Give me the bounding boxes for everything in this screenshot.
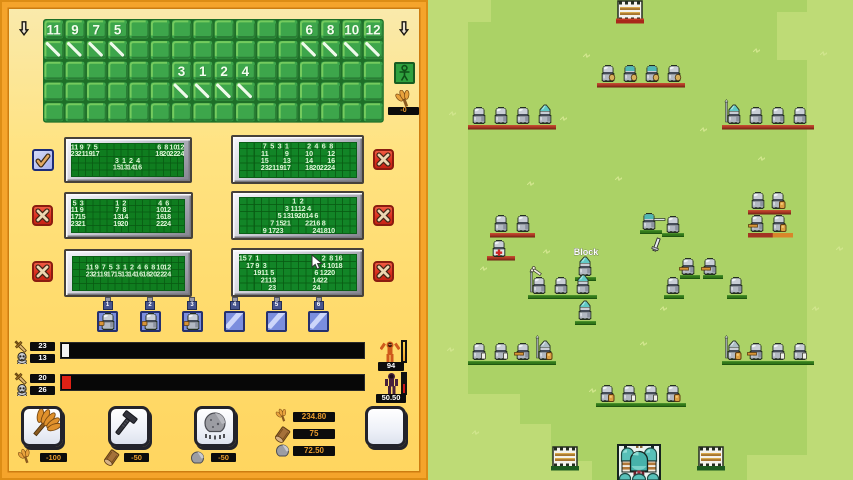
svg-text:8: 8 [327, 23, 335, 38]
svg-text:7: 7 [93, 23, 101, 38]
svg-text:24: 24 [177, 149, 185, 158]
svg-text:5: 5 [114, 23, 122, 38]
svg-text:24: 24 [163, 218, 171, 227]
svg-text:20: 20 [120, 218, 128, 227]
svg-text:4: 4 [242, 64, 250, 79]
svg-text:24: 24 [312, 283, 320, 290]
svg-text:10: 10 [327, 226, 335, 233]
svg-text:23: 23 [268, 283, 276, 290]
svg-text:3: 3 [178, 64, 186, 79]
svg-text:4: 4 [314, 142, 318, 151]
svg-text:11: 11 [47, 23, 62, 38]
svg-text:17: 17 [282, 163, 290, 172]
svg-text:20: 20 [327, 268, 335, 277]
svg-text:5: 5 [270, 142, 274, 151]
svg-text:Block: Block [574, 247, 600, 257]
svg-text:21: 21 [78, 218, 86, 227]
svg-text:24: 24 [163, 269, 171, 278]
svg-text:21: 21 [282, 219, 290, 228]
svg-text:9: 9 [262, 226, 266, 233]
svg-text:23: 23 [275, 226, 283, 233]
svg-text:6: 6 [321, 142, 325, 151]
svg-text:24: 24 [327, 163, 335, 172]
svg-text:18: 18 [334, 261, 342, 270]
svg-text:9: 9 [71, 23, 79, 38]
svg-text:16: 16 [134, 162, 142, 171]
svg-text:10: 10 [344, 23, 359, 38]
svg-text:1: 1 [199, 64, 207, 79]
svg-text:2: 2 [221, 64, 229, 79]
svg-text:17: 17 [92, 149, 100, 158]
svg-text:22: 22 [319, 276, 327, 285]
svg-text:3: 3 [277, 142, 281, 151]
svg-text:6: 6 [306, 23, 314, 38]
svg-text:12: 12 [366, 23, 381, 38]
